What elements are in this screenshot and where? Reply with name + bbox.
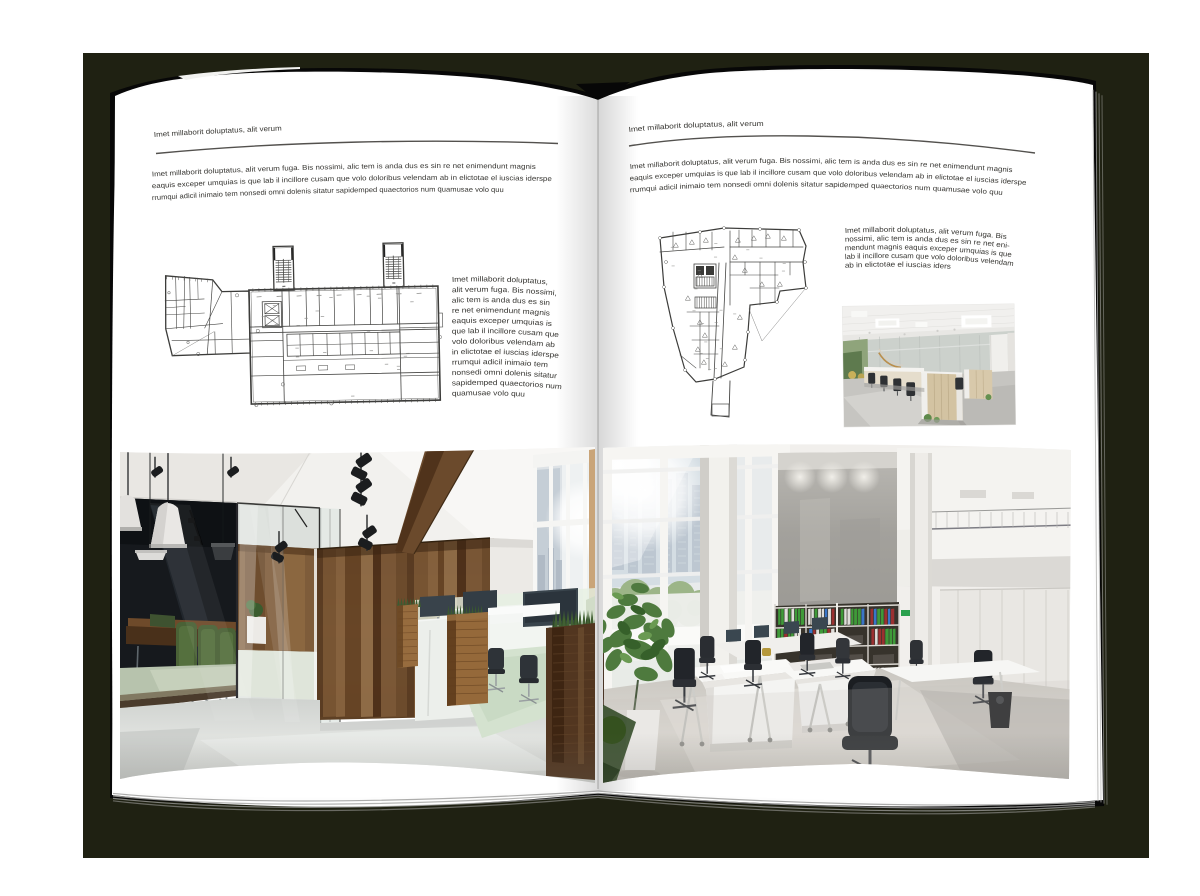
- svg-text:quamusae volo quu: quamusae volo quu: [452, 388, 526, 398]
